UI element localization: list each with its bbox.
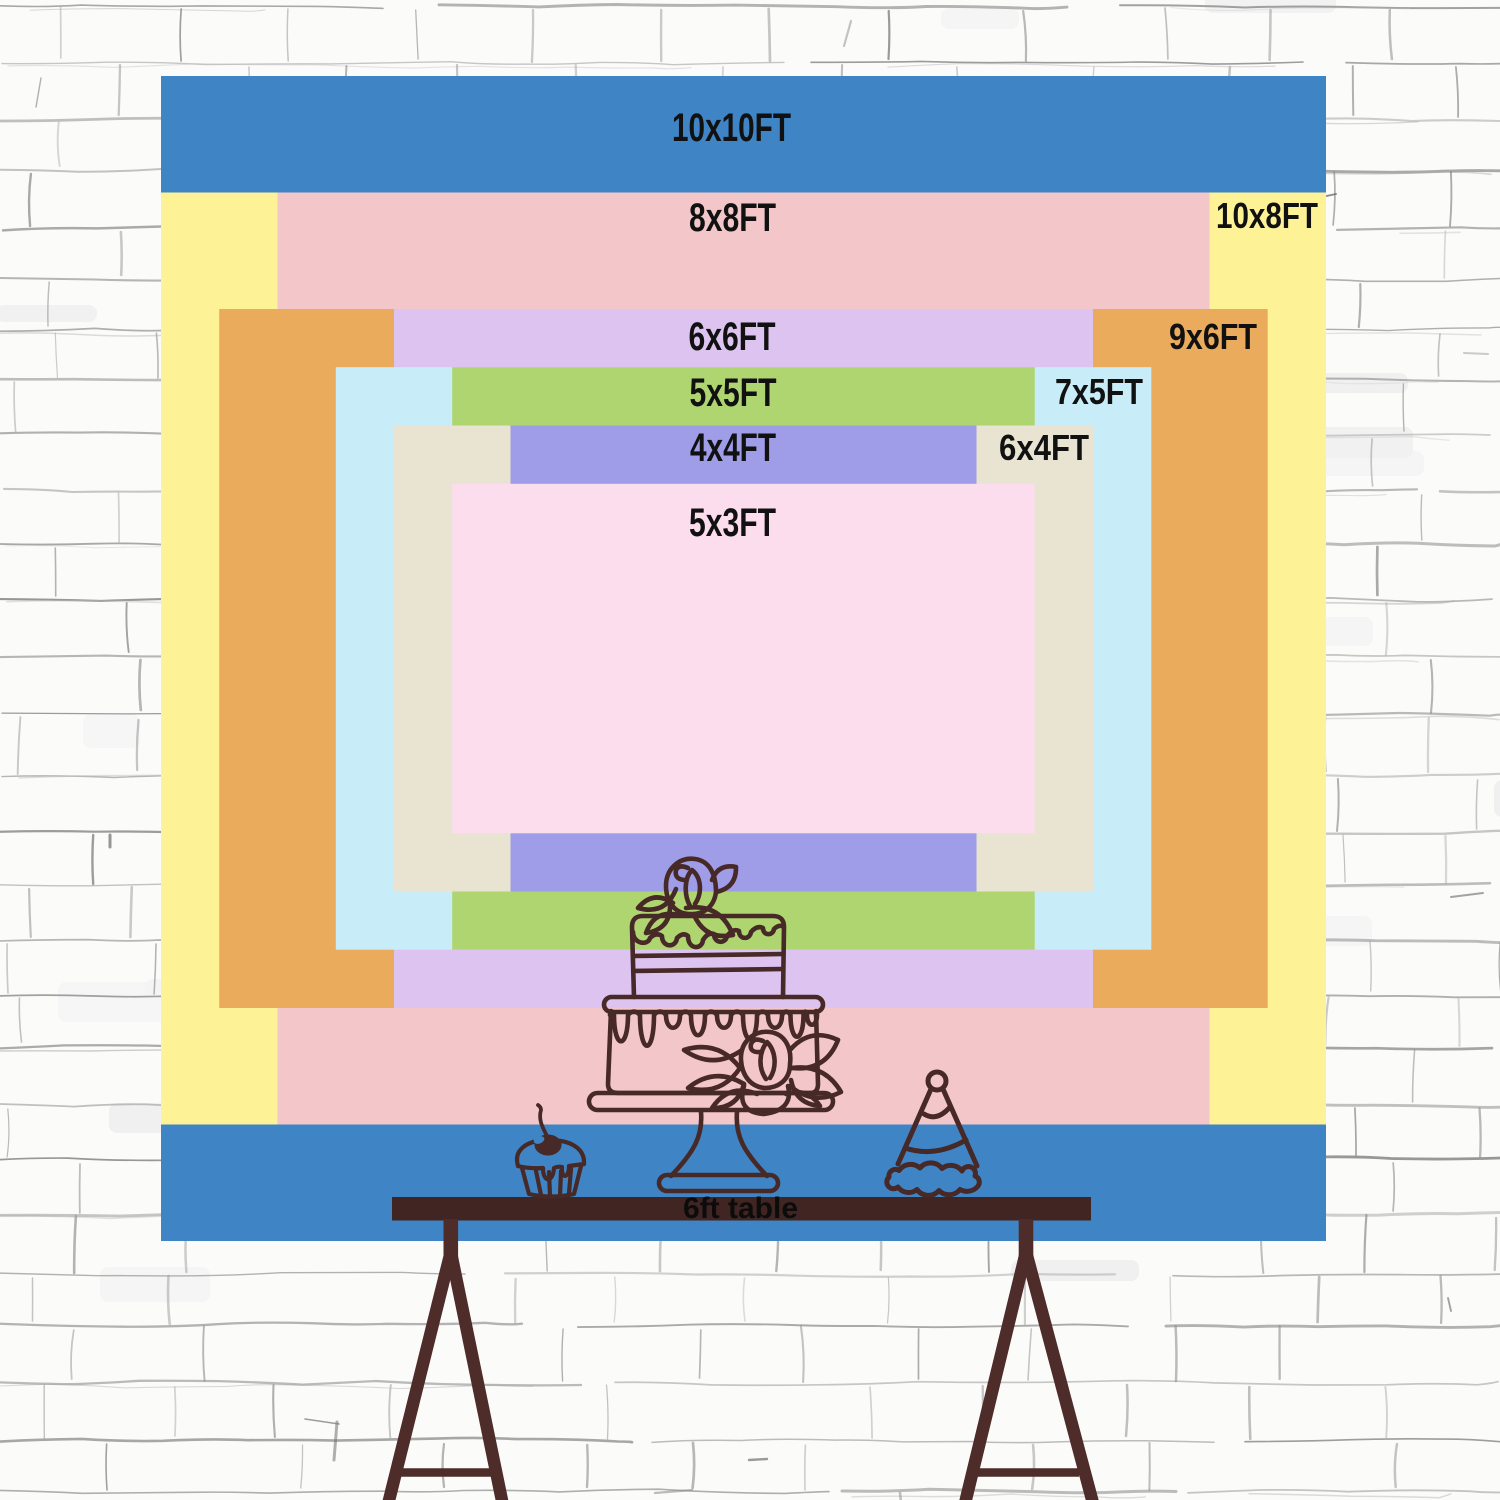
svg-text:5x5FT: 5x5FT <box>690 371 777 415</box>
svg-text:5x3FT: 5x3FT <box>689 501 776 545</box>
svg-text:10x8FT: 10x8FT <box>1216 195 1318 236</box>
svg-text:7x5FT: 7x5FT <box>1055 371 1143 412</box>
svg-text:10x10FT: 10x10FT <box>672 106 791 150</box>
svg-text:6x4FT: 6x4FT <box>999 427 1089 468</box>
svg-text:9x6FT: 9x6FT <box>1169 316 1257 357</box>
svg-text:4x4FT: 4x4FT <box>690 426 776 470</box>
svg-text:8x8FT: 8x8FT <box>689 196 776 240</box>
svg-text:6x6FT: 6x6FT <box>689 315 776 359</box>
svg-text:6ft table: 6ft table <box>683 1192 798 1225</box>
